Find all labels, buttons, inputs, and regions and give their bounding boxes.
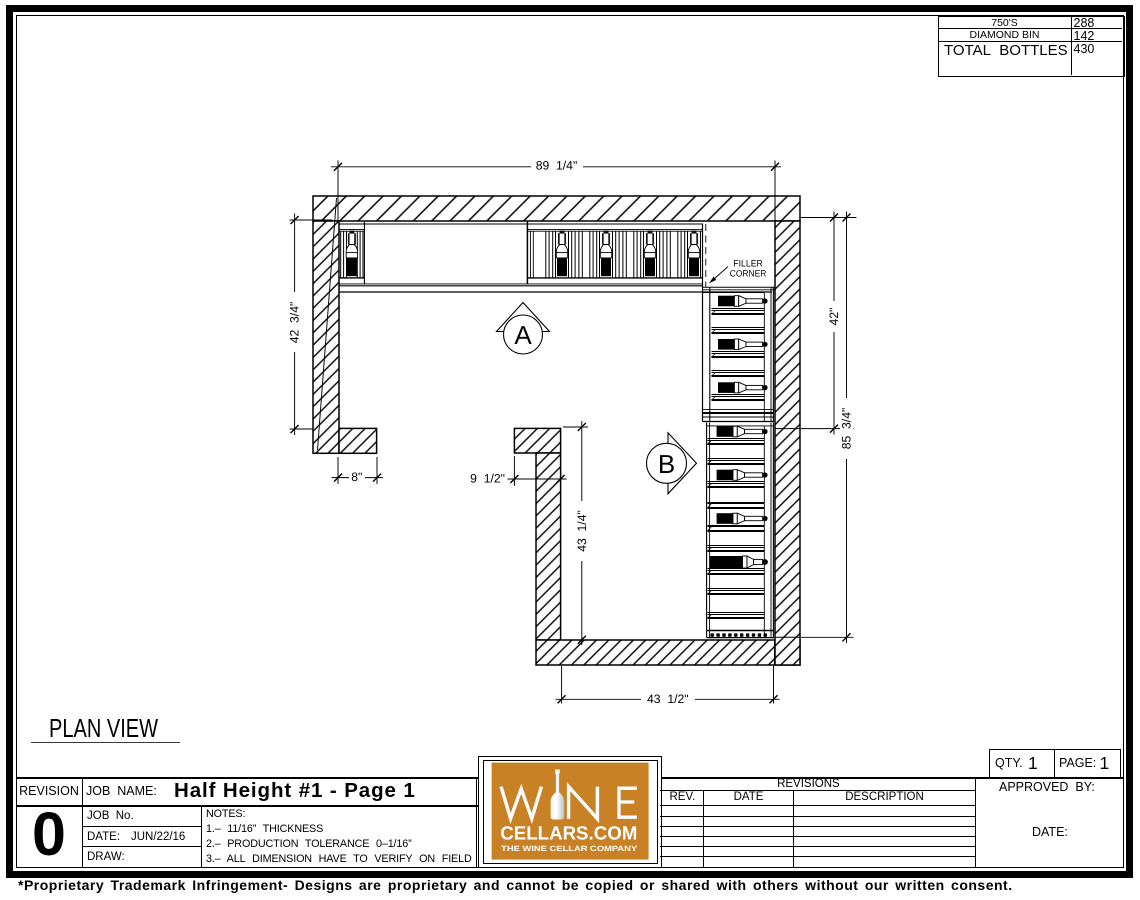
svg-text:B: B: [658, 449, 675, 479]
svg-text:A: A: [514, 320, 532, 350]
svg-text:9 1/2": 9 1/2": [470, 471, 505, 485]
svg-text:43 1/2": 43 1/2": [647, 692, 689, 706]
svg-text:THE WINE CELLAR COMPANY: THE WINE CELLAR COMPANY: [502, 844, 638, 853]
svg-text:8": 8": [351, 470, 362, 484]
svg-text:42 3/4": 42 3/4": [288, 302, 302, 344]
svg-text:CORNER: CORNER: [730, 269, 767, 279]
svg-text:43 1/4": 43 1/4": [575, 510, 589, 552]
svg-text:CELLARS.COM: CELLARS.COM: [501, 823, 638, 844]
svg-text:FILLER: FILLER: [733, 258, 763, 268]
svg-text:89 1/4": 89 1/4": [536, 158, 578, 172]
svg-text:42": 42": [827, 308, 841, 326]
svg-text:85 3/4": 85 3/4": [840, 408, 854, 450]
